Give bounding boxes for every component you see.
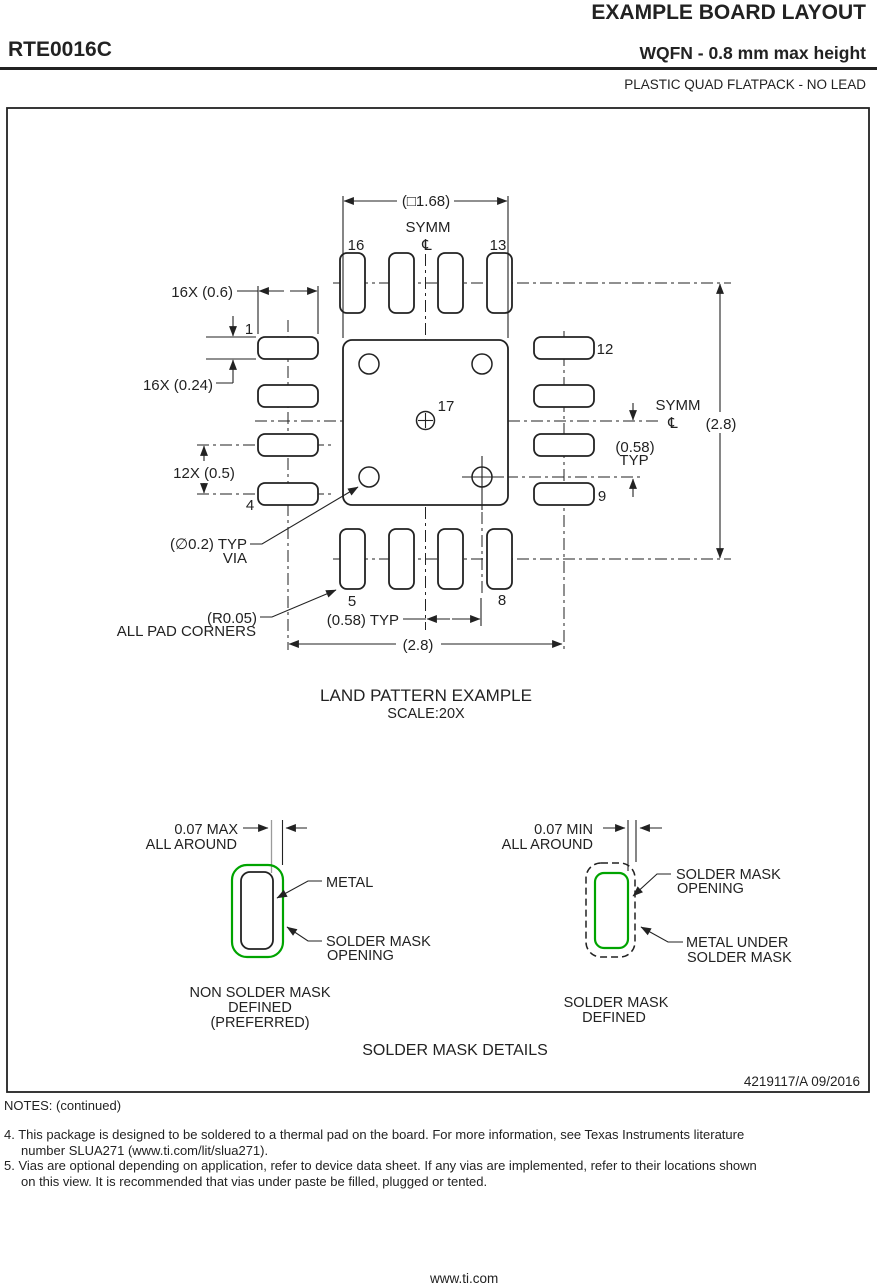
pad-12	[534, 337, 594, 359]
note-4-line1: 4. This package is designed to be solder…	[4, 1127, 744, 1143]
via	[359, 467, 379, 487]
nsmd-caption-line1: NON SOLDER MASK	[190, 985, 331, 1001]
pad-2	[258, 385, 318, 407]
land-pattern-scale: SCALE:20X	[387, 706, 465, 722]
dim-28-bottom-label: (2.8)	[403, 637, 434, 654]
smd-solder-mask-opening	[595, 873, 628, 948]
pin-8: 8	[498, 592, 506, 609]
pad-3	[258, 434, 318, 456]
datasheet-page: EXAMPLE BOARD LAYOUT RTE0016C WQFN - 0.8…	[0, 0, 877, 1288]
dim-pad-grid-label: (□1.68)	[402, 193, 450, 210]
pad-6	[389, 529, 414, 589]
smd-figure: 0.07 MIN ALL AROUND SOLDER MASK OPENING …	[502, 820, 792, 1026]
nsmd-metal-pad	[241, 872, 273, 949]
dim-058-right: (0.58) TYP	[615, 403, 654, 497]
via	[359, 354, 379, 374]
pin-5: 5	[348, 593, 356, 610]
note-5-line1: 5. Vias are optional depending on applic…	[4, 1158, 757, 1174]
nsmd-solder-mask-opening	[232, 865, 283, 957]
pin-17: 17	[438, 398, 455, 415]
smd-dim-line2: ALL AROUND	[502, 837, 593, 853]
pad-10	[534, 434, 594, 456]
dim-28-right: (2.8)	[706, 284, 737, 558]
thermal-pad	[343, 340, 508, 510]
nsmd-caption-line3: (PREFERRED)	[210, 1015, 309, 1031]
nsmd-dim-line1: 0.07 MAX	[174, 822, 238, 838]
pad-1	[258, 337, 318, 359]
via	[472, 354, 492, 374]
corner-note-line2: ALL PAD CORNERS	[117, 623, 256, 640]
pad-7	[438, 529, 463, 589]
corner-radius-callout: (R0.05) ALL PAD CORNERS	[117, 590, 336, 640]
pad-11	[534, 385, 594, 407]
dim-pitch: 12X (0.5)	[173, 446, 235, 493]
pad-15	[389, 253, 414, 313]
symm-right-label: SYMM	[656, 397, 701, 414]
dim-28-right-label: (2.8)	[706, 416, 737, 433]
board-layout-drawing: (□1.68) SYMM ℄ 16 13 1 4 5 8 9 12 17 16X…	[0, 0, 877, 1100]
note-5-line2: on this view. It is recommended that via…	[4, 1174, 487, 1190]
notes-heading: NOTES: (continued)	[4, 1098, 121, 1114]
dim-058-right-line2: TYP	[619, 452, 648, 469]
land-pattern-title: LAND PATTERN EXAMPLE	[320, 686, 532, 705]
pad-14	[438, 253, 463, 313]
smd-metal-line2: SOLDER MASK	[687, 950, 792, 966]
pin-4: 4	[246, 497, 254, 514]
drawing-number: 4219117/A 09/2016	[744, 1074, 860, 1089]
centerline-symbol-top: ℄	[421, 236, 432, 254]
nsmd-caption-line2: DEFINED	[228, 1000, 292, 1016]
nsmd-opening-line2: OPENING	[327, 948, 394, 964]
smd-opening-line2: OPENING	[677, 881, 744, 897]
ti-website-link[interactable]: www.ti.com	[430, 1271, 498, 1286]
pad-9	[534, 483, 594, 505]
pin-13: 13	[490, 237, 507, 254]
pad-5	[340, 529, 365, 589]
nsmd-dim-line2: ALL AROUND	[146, 837, 237, 853]
pad-16	[340, 253, 365, 313]
pin-12: 12	[597, 341, 614, 358]
dim-28-bottom: (2.8)	[289, 637, 562, 654]
pin-1: 1	[245, 321, 253, 338]
note-4-line2: number SLUA271 (www.ti.com/lit/slua271).	[4, 1143, 268, 1159]
dim-058-bottom-label: (0.58) TYP	[327, 612, 399, 629]
smd-dim-line1: 0.07 MIN	[534, 822, 593, 838]
symm-top-label: SYMM	[406, 219, 451, 236]
centerline-symbol-right: ℄	[667, 414, 678, 432]
pad-4	[258, 483, 318, 505]
smd-caption-line1: SOLDER MASK	[564, 995, 669, 1011]
nsmd-figure: 0.07 MAX ALL AROUND METAL SOLDER MASK OP…	[146, 820, 431, 1031]
dim-pad-height: 16X (0.24)	[143, 316, 256, 394]
dim-pad-height-label: 16X (0.24)	[143, 377, 213, 394]
nsmd-metal-label: METAL	[326, 875, 373, 891]
dim-pad-width-label: 16X (0.6)	[171, 284, 233, 301]
pin-16: 16	[348, 237, 365, 254]
pad-8	[487, 529, 512, 589]
pin-9: 9	[598, 488, 606, 505]
dim-pitch-label: 12X (0.5)	[173, 465, 235, 482]
smd-metal-line1: METAL UNDER	[686, 935, 788, 951]
via-note-line2: VIA	[223, 550, 247, 567]
solder-mask-section-title: SOLDER MASK DETAILS	[362, 1042, 548, 1059]
smd-caption-line2: DEFINED	[582, 1010, 646, 1026]
